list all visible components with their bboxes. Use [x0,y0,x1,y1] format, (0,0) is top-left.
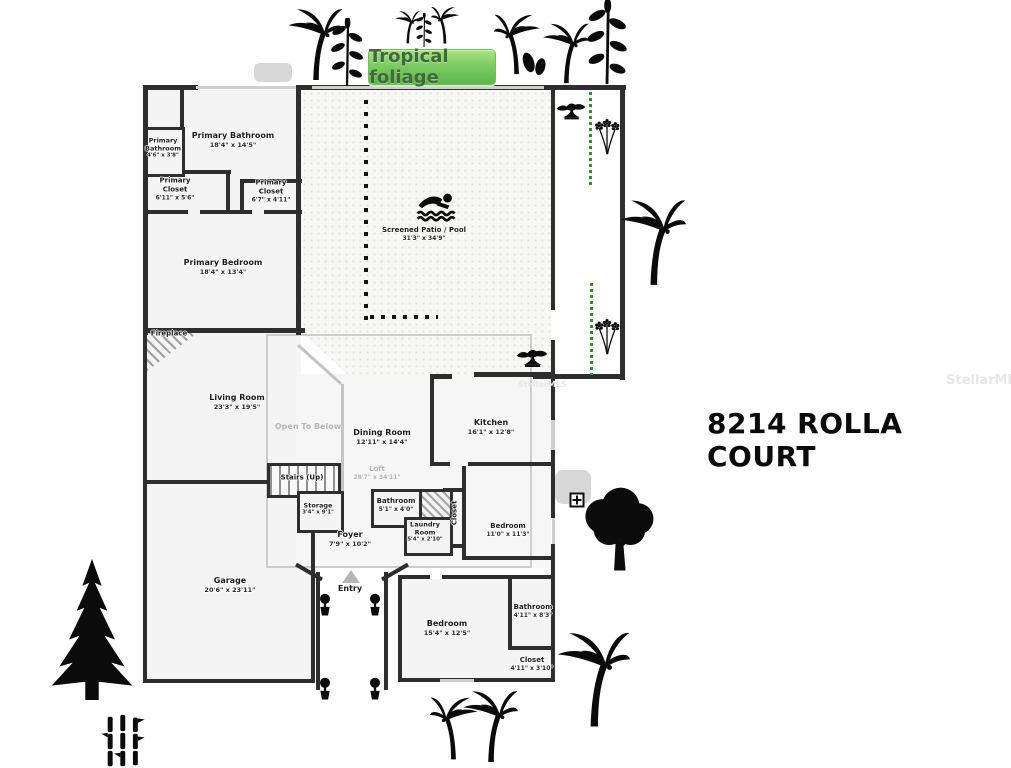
wall [240,179,244,214]
wall [508,646,553,650]
room-dims: 23'3" x 19'5" [209,403,265,411]
room-name: Storage [302,502,334,510]
measure-dotted-line [364,100,368,320]
room-dims: 28'7" x 34'11" [353,474,400,482]
room-name: Garage [204,576,255,586]
deciduous-tree-icon [578,481,660,573]
room-name: Bedroom [424,619,471,629]
room-dims: 18'4" x 14'5" [192,141,275,149]
swimmer-icon [415,188,459,224]
wall [430,376,434,466]
wall [551,544,555,578]
room-label-screened-patio-pool: Screened Patio / Pool 31'3" x 34'9" [382,226,466,242]
wall [264,210,302,214]
wall [398,575,430,579]
bamboo-icon [100,714,146,768]
wall [143,480,267,484]
room-label-fireplace: Fireplace [151,330,187,339]
room-name: Foyer [329,530,371,540]
pine-tree-icon [44,553,140,705]
room-dims: 3'4" x 9'1" [302,510,334,517]
room-label-bathroom-half: Bathroom 5'1" x 4'0" [377,497,416,513]
room-dims: 4'11" x 8'3" [514,612,553,620]
palm-tree-icon [548,624,630,734]
room-label-primary-closet-right: Primary Closet 6'7" x 4'11" [248,179,294,204]
room-label-bathroom-lower: Bathroom 4'11" x 8'3" [514,603,553,619]
room-name: Bedroom [486,522,529,531]
room-label-foyer: Foyer 7'9" x 10'2" [329,530,371,548]
room-dims: 16'1" x 12'8" [468,428,515,436]
window [440,679,474,682]
room-label-bedroom-lower: Bedroom 15'4" x 12'5" [424,619,471,637]
bonsai-icon [516,344,548,372]
topiary-icon [317,593,333,617]
wall [143,210,188,214]
wall [462,556,553,560]
hedge-dotted-line [590,283,593,375]
room-label-storage: Storage 3'4" x 9'1" [302,502,334,517]
room-name: Kitchen [468,418,515,428]
room-dims: 7'9" x 10'2" [329,540,371,548]
room-name: Entry [338,584,362,594]
room-label-primary-bedroom: Primary Bedroom 18'4" x 13'4" [184,258,263,276]
window [551,420,555,450]
room-name: Living Room [209,393,265,403]
room-name: Primary Bedroom [184,258,263,268]
flowers-icon [594,114,620,160]
watermark: StellarMLS [518,380,567,389]
badge-label: Tropical foliage [369,46,495,88]
wall [508,579,512,648]
room-dims: 20'6" x 23'11" [204,586,255,594]
bonsai-icon [556,99,586,123]
wall [474,372,551,377]
wall [398,575,402,682]
room-name: Laundry Room [405,520,445,536]
room-label-garage: Garage 20'6" x 23'11" [204,576,255,594]
room-label-living-room: Living Room 23'3" x 19'5" [209,393,265,411]
wall [442,575,553,579]
wall [430,462,450,466]
room-dims: 5'4" x 2'10" [405,537,445,544]
wall [143,679,315,683]
room-dims: 6'11" x 5'6" [152,194,198,202]
room-name: Primary Closet [152,177,198,195]
room-name: Loft [353,465,400,474]
wall [468,462,553,466]
room-dims: 11'0" x 11'3" [486,531,529,539]
palm-tree-icon [537,20,589,86]
room-dims: 12'11" x 14'4" [353,438,411,446]
room-dims: 15'4" x 12'5" [424,629,471,637]
room-name: Primary Bathroom [145,136,181,152]
room-label-kitchen: Kitchen 16'1" x 12'8" [468,418,515,436]
topiary-icon [367,593,383,617]
wall [143,85,198,90]
topiary-icon [367,677,383,701]
room-label-laundry-room: Laundry Room 5'4" x 2'10" [405,520,445,543]
hedge-dotted-line [589,92,592,186]
room-name: Bathroom [514,603,553,612]
measure-dotted-line [370,315,438,319]
palm-tree-icon [431,5,463,45]
room-name: Primary Bathroom [192,131,275,141]
wall [384,572,388,690]
room-label-primary-bathroom-small: Primary Bathroom 4'6" x 3'8" [145,136,181,159]
room-dims: 18'4" x 13'4" [184,268,263,276]
room-dims: 31'3" x 34'9" [382,235,466,243]
room-name: Stairs (Up) [281,474,324,483]
floor-plan-canvas: Primary Bathroom 4'6" x 3'8" Primary Bat… [0,0,1011,768]
leafy-branch-icon [328,18,366,86]
tropical-foliage-badge: Tropical foliage [368,49,496,85]
room-label-loft: Loft 28'7" x 34'11" [353,465,400,481]
room-dims: 6'7" x 4'11" [248,196,294,204]
room-label-dining-room: Dining Room 12'11" x 14'4" [353,428,411,446]
wall [551,88,555,310]
room-name: Primary Closet [248,179,294,197]
north-arrow-icon [342,570,360,583]
leafy-branch-icon [584,0,630,84]
room-label-primary-bathroom: Primary Bathroom 18'4" x 14'5" [192,131,275,149]
room-label-closet-hall: Closet [451,501,460,526]
wall [398,678,553,682]
room-label-bedroom-mid: Bedroom 11'0" x 11'3" [486,522,529,538]
room-name: Closet [451,501,460,526]
room-name: Fireplace [151,330,187,339]
wall [143,330,147,683]
room-label-stairs: Stairs (Up) [281,474,324,483]
window [196,86,300,89]
window [552,518,555,544]
room-dims: 4'6" x 3'8" [145,153,181,160]
room-name: Dining Room [353,428,411,438]
room-name: Open To Below [275,422,341,432]
room-name: Bathroom [377,497,416,506]
wall [180,85,184,130]
palm-tree-icon [456,684,518,768]
flowers-icon [594,314,620,360]
palm-tree-icon [612,190,686,294]
room-dims: 5'1" x 4'0" [377,506,416,514]
room-label-primary-closet-left: Primary Closet 6'11" x 5'6" [152,177,198,202]
topiary-icon [317,677,333,701]
room-label-open-to-below: Open To Below [275,422,341,432]
room-name: Screened Patio / Pool [382,226,466,235]
room-label-entry: Entry [338,584,362,594]
wall [226,170,230,214]
watermark: StellarMLS [946,373,1011,388]
wall [316,572,320,690]
page-title: 8214 ROLLA COURT [707,407,1011,473]
